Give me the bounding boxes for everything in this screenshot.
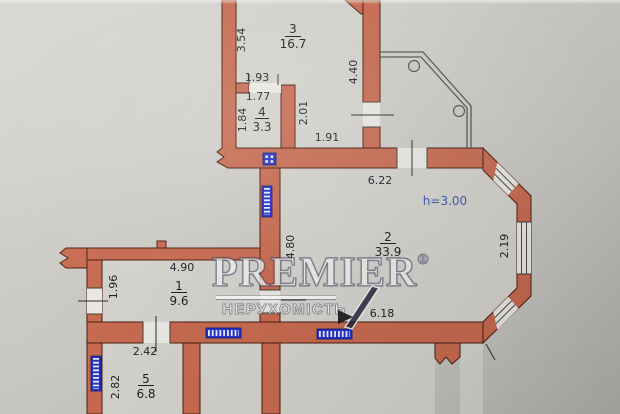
dim-room3-right-height: 4.40 bbox=[347, 60, 360, 85]
door-leaf-line bbox=[486, 344, 495, 360]
wall-segment bbox=[87, 248, 260, 260]
dim-room4-right-height: 2.01 bbox=[297, 101, 310, 126]
dim-room5-left-height: 2.82 bbox=[109, 375, 122, 400]
wall-segment bbox=[262, 343, 280, 414]
wall-segment bbox=[183, 343, 200, 414]
wall-break-stub bbox=[60, 248, 87, 268]
floorplan-photo: 3 16.7 4 3.3 2 33.9 1 9.6 5 6.8 1.93 1.7… bbox=[0, 0, 620, 414]
dim-room4-left-height: 1.84 bbox=[236, 108, 249, 133]
railing-post-icon bbox=[454, 106, 465, 117]
wall-notch bbox=[157, 241, 166, 248]
floorplan-drawing: 3 16.7 4 3.3 2 33.9 1 9.6 5 6.8 1.93 1.7… bbox=[0, 0, 620, 414]
dim-room4-door-inner: 1.77 bbox=[246, 90, 271, 103]
balcony-railing bbox=[380, 52, 471, 148]
room-3-area: 16.7 bbox=[280, 37, 307, 51]
radiator-icon bbox=[262, 186, 272, 217]
dim-room4-door-outer: 1.93 bbox=[245, 71, 270, 84]
vent-shaft-icon bbox=[263, 153, 276, 165]
room-1-door-opening bbox=[260, 290, 280, 313]
wall-segment bbox=[87, 322, 143, 343]
dim-room3-left-height: 3.54 bbox=[235, 28, 248, 53]
wall-segment bbox=[363, 0, 380, 102]
lower-room-floor bbox=[280, 343, 435, 414]
lower-room-floor bbox=[200, 343, 262, 414]
dim-room1-top-width: 4.90 bbox=[170, 261, 195, 274]
radiator-icon bbox=[317, 329, 352, 339]
wall-break-stub bbox=[435, 343, 460, 364]
radiator-icon bbox=[206, 328, 241, 338]
wall-segment bbox=[427, 148, 483, 168]
room-2-area: 33.9 bbox=[375, 245, 402, 259]
railing-line bbox=[380, 57, 467, 148]
room-1-number: 1 bbox=[175, 279, 183, 293]
dim-room1-left-height: 1.96 bbox=[107, 275, 120, 300]
railing-line bbox=[380, 52, 471, 148]
radiator-icon bbox=[91, 356, 101, 391]
ceiling-height-note: h=3.00 bbox=[423, 194, 467, 208]
room-1-area: 9.6 bbox=[169, 294, 188, 308]
bay-window-right bbox=[517, 222, 531, 274]
room-3-number: 3 bbox=[289, 22, 297, 36]
dim-room3-passage-width: 1.91 bbox=[315, 131, 340, 144]
room-5-number: 5 bbox=[142, 372, 150, 386]
dim-bay-window-width: 2.19 bbox=[498, 234, 511, 259]
dim-room5-top-width: 2.42 bbox=[133, 345, 158, 358]
wall-segment bbox=[281, 85, 295, 148]
dim-room2-bottom-width: 6.18 bbox=[370, 307, 395, 320]
room-4-number: 4 bbox=[258, 105, 266, 119]
railing-post-icon bbox=[409, 61, 420, 72]
lower-room-floor bbox=[460, 343, 483, 414]
room-5-area: 6.8 bbox=[136, 387, 155, 401]
wall-segment bbox=[363, 127, 380, 148]
dim-room2-top-width: 6.22 bbox=[368, 174, 393, 187]
dim-room2-left-height: 4.80 bbox=[284, 235, 297, 260]
room-4-area: 3.3 bbox=[252, 120, 271, 134]
room-2-number: 2 bbox=[384, 230, 392, 244]
